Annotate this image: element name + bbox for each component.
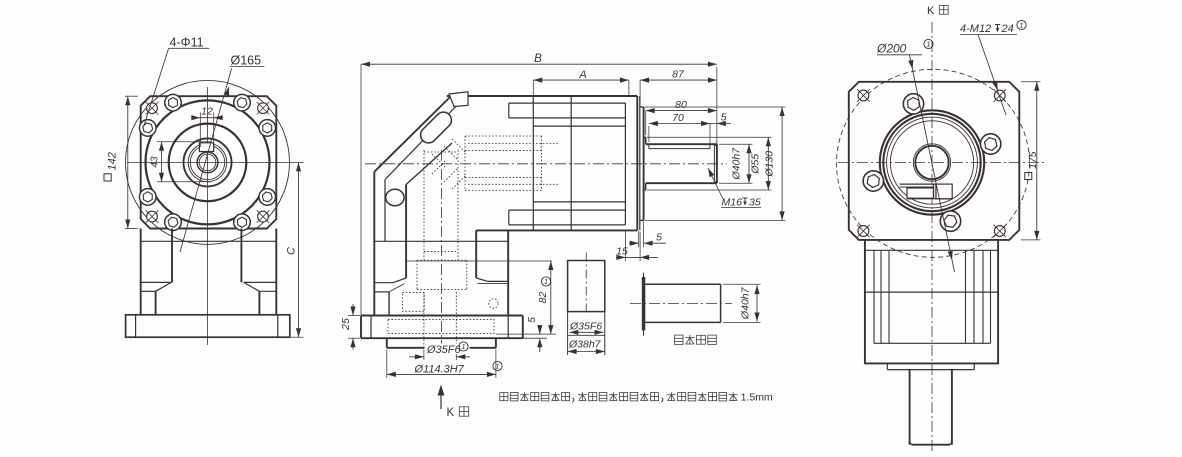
svg-text:Ø35F6: Ø35F6	[426, 344, 462, 356]
svg-text:1: 1	[926, 40, 930, 49]
svg-text:Ø130: Ø130	[764, 151, 776, 178]
svg-text:1.5mm: 1.5mm	[741, 392, 773, 404]
svg-text:70: 70	[672, 112, 684, 124]
svg-text:15: 15	[616, 246, 628, 258]
svg-text:Ø55: Ø55	[750, 154, 762, 175]
svg-text:5: 5	[721, 112, 727, 124]
svg-text:24: 24	[1001, 23, 1014, 35]
svg-text:25: 25	[340, 318, 352, 331]
svg-text:87: 87	[672, 69, 685, 81]
svg-text:Ø38h7: Ø38h7	[568, 339, 602, 351]
svg-text:4-M12: 4-M12	[960, 23, 991, 35]
svg-text:35: 35	[749, 197, 761, 209]
svg-text:Ø40h7: Ø40h7	[731, 147, 743, 181]
svg-text:82: 82	[537, 292, 549, 304]
svg-text:Ø114.3H7: Ø114.3H7	[414, 364, 465, 376]
svg-text:1: 1	[1019, 21, 1023, 30]
svg-text:80: 80	[675, 99, 687, 111]
svg-text:5: 5	[526, 317, 538, 323]
svg-text:M16: M16	[722, 197, 743, 209]
svg-text:142: 142	[107, 152, 119, 170]
svg-text:Ø40h7: Ø40h7	[740, 286, 752, 320]
svg-text:A: A	[578, 69, 586, 81]
svg-text:K: K	[447, 407, 455, 419]
svg-text:4-Φ11: 4-Φ11	[170, 36, 204, 50]
svg-text:5: 5	[656, 232, 662, 244]
svg-text:Ø165: Ø165	[231, 54, 262, 68]
svg-text:C: C	[286, 247, 298, 255]
svg-text:1: 1	[461, 342, 465, 351]
svg-text:Ø200: Ø200	[876, 42, 907, 56]
svg-text:B: B	[534, 53, 542, 65]
svg-text:1: 1	[544, 277, 548, 286]
svg-text:175: 175	[1027, 151, 1039, 169]
svg-text:12: 12	[201, 106, 213, 118]
svg-text:K: K	[927, 5, 935, 17]
svg-text:1: 1	[495, 362, 499, 371]
svg-text:43: 43	[150, 156, 161, 168]
